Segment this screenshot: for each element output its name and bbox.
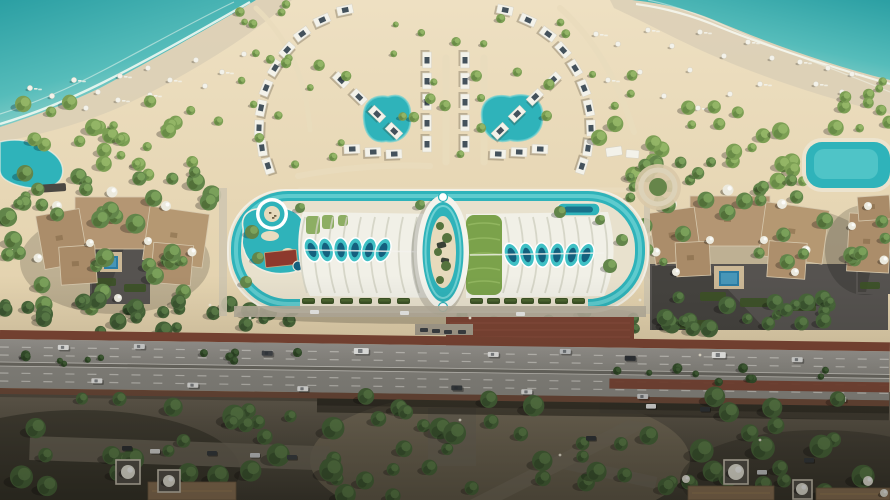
- resort-aerial-scene: [0, 0, 890, 500]
- aerial-render-stage: [0, 0, 890, 500]
- vignette: [0, 0, 890, 500]
